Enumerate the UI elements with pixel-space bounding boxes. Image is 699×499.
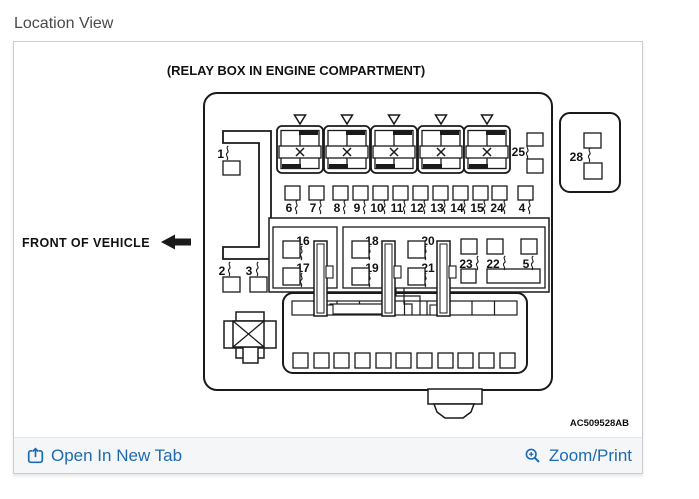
location-view-panel: (RELAY BOX IN ENGINE COMPARTMENT) FRONT … (13, 41, 643, 474)
location-view-page: Location View (RELAY BOX IN ENGINE COMPA… (0, 0, 699, 499)
label-5: 5 (523, 257, 530, 271)
page-title: Location View (14, 15, 113, 33)
label-22: 22 (486, 257, 500, 271)
main-relay-box: 1 25 6 7 8 9 10 11 (204, 93, 552, 418)
open-new-tab-icon (27, 447, 44, 464)
label-23: 23 (459, 257, 473, 271)
diagram-caption: (RELAY BOX IN ENGINE COMPARTMENT) (167, 63, 425, 78)
front-of-vehicle-label: FRONT OF VEHICLE (22, 236, 150, 250)
label-28: 28 (570, 150, 584, 164)
svg-text:11: 11 (391, 201, 404, 215)
svg-text:24: 24 (490, 201, 504, 215)
zoom-icon (524, 447, 542, 465)
open-new-tab-link[interactable]: Open In New Tab (27, 446, 182, 466)
label-2: 2 (219, 264, 226, 278)
zoom-print-label: Zoom/Print (549, 446, 632, 466)
fuse-cell: 24 (490, 186, 507, 215)
relay-module (418, 126, 464, 173)
svg-text:8: 8 (334, 201, 341, 215)
svg-text:10: 10 (370, 201, 384, 215)
relay-modules (277, 126, 510, 173)
svg-text:14: 14 (450, 201, 464, 215)
open-new-tab-label: Open In New Tab (51, 446, 182, 466)
relay-module (324, 126, 370, 173)
part-code: AC509528AB (570, 418, 629, 429)
footer-bar: Open In New Tab Zoom/Print (14, 437, 642, 473)
svg-text:12: 12 (410, 201, 424, 215)
svg-text:7: 7 (310, 201, 317, 215)
relay-module (464, 126, 510, 173)
relay-module (371, 126, 417, 173)
label-1: 1 (217, 147, 224, 161)
connector-bottom-pins (293, 353, 515, 368)
bottom-tab (428, 389, 482, 418)
label-3: 3 (246, 264, 253, 278)
svg-text:13: 13 (430, 201, 444, 215)
svg-text:6: 6 (286, 201, 293, 215)
relay-module (277, 126, 323, 173)
label-25: 25 (512, 145, 526, 159)
svg-text:4: 4 (519, 201, 526, 215)
right-positions: 23 22 5 (459, 239, 540, 283)
side-box-28: 28 (560, 113, 620, 192)
left-arrow-icon (161, 235, 191, 250)
relay-box-diagram: (RELAY BOX IN ENGINE COMPARTMENT) FRONT … (14, 42, 642, 437)
zoom-print-link[interactable]: Zoom/Print (524, 446, 632, 466)
front-of-vehicle: FRONT OF VEHICLE (22, 235, 191, 251)
svg-text:9: 9 (354, 201, 361, 215)
svg-text:15: 15 (470, 201, 484, 215)
